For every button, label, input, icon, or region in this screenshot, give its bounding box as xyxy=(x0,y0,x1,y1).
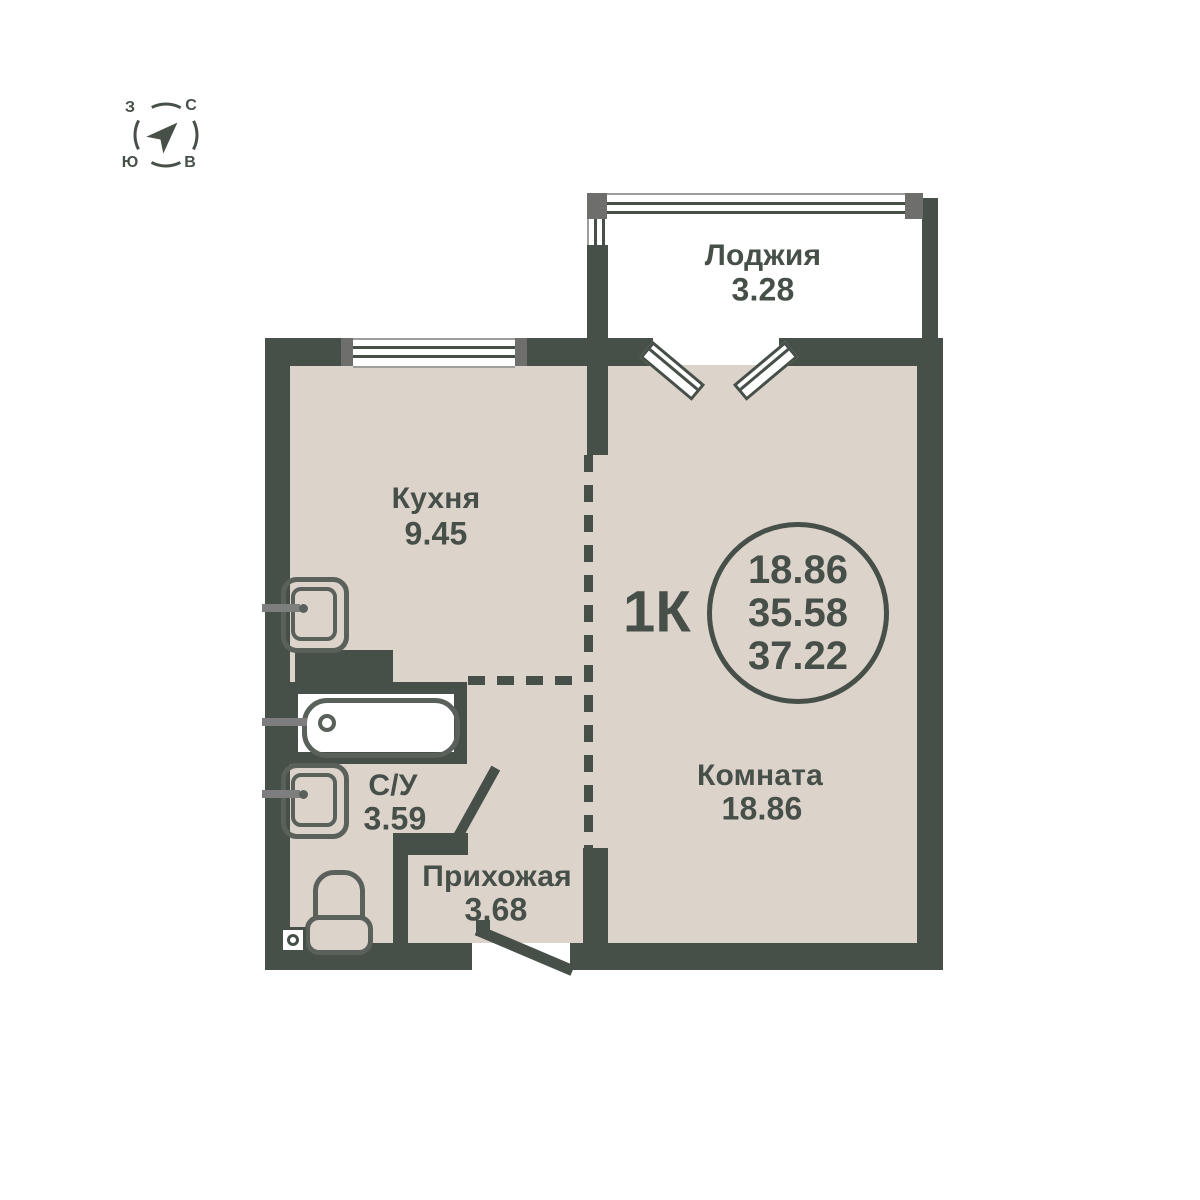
floor-drain-icon xyxy=(280,927,306,953)
area-summary-circle: 18.86 35.58 37.22 xyxy=(707,522,889,704)
kitchen-label: Кухня xyxy=(392,482,481,516)
loggia-window xyxy=(607,193,905,221)
room-area: 18.86 xyxy=(721,791,802,828)
hallway-label: Прихожая xyxy=(422,860,572,894)
kitchen-sink-basin xyxy=(291,587,337,641)
kitchen-window xyxy=(353,338,515,368)
compass-north-label: С xyxy=(185,97,197,115)
window-post xyxy=(515,338,527,366)
bathtub-tap-icon xyxy=(262,718,307,726)
kitchen-sink-tap-icon xyxy=(262,604,300,612)
wall-segment-left xyxy=(265,338,290,970)
hallway-area: 3.68 xyxy=(464,892,527,929)
wall-segment-loggia-right xyxy=(922,198,938,345)
wall-segment-top-room-right xyxy=(779,338,943,366)
wall-segment-top-kitchen-left xyxy=(265,338,353,366)
total-area-value: 37.22 xyxy=(748,635,848,678)
duct-block xyxy=(295,650,393,683)
wall-segment-room-hall xyxy=(583,848,608,945)
compass-east-label: В xyxy=(184,154,196,172)
window-post xyxy=(587,193,607,219)
kitchen-room-dashed-border xyxy=(584,455,593,848)
bathroom-label: С/У xyxy=(368,769,417,803)
kitchen-sink-drain-icon xyxy=(299,604,308,613)
bathroom-area: 3.59 xyxy=(363,801,426,838)
wall-segment-loggia-kitchen xyxy=(587,245,608,455)
area-without-loggia-value: 35.58 xyxy=(748,592,848,635)
loggia-area: 3.28 xyxy=(731,272,794,309)
compass-south-label: Ю xyxy=(122,154,139,172)
apartment-type-label: 1К xyxy=(623,579,691,646)
wall-segment-bottom-right xyxy=(570,943,943,970)
kitchen-area: 9.45 xyxy=(404,516,467,553)
wall-segment-right xyxy=(917,360,943,970)
living-area-value: 18.86 xyxy=(748,549,848,592)
window-post xyxy=(341,338,353,366)
window-post xyxy=(905,193,923,219)
loggia-label: Лоджия xyxy=(705,239,821,273)
bathroom-sink-basin xyxy=(291,773,337,827)
compass-arrow-icon xyxy=(146,114,186,154)
compass: З С Ю В xyxy=(0,0,260,230)
bathroom-sink-drain-icon xyxy=(299,790,308,799)
loggia-window-side xyxy=(587,219,609,245)
bathroom-sink-tap-icon xyxy=(262,790,300,798)
floor-plan: З С Ю В xyxy=(0,0,1200,1200)
bathtub-drain-icon xyxy=(318,714,336,732)
room-label: Комната xyxy=(697,759,823,793)
compass-west-label: З xyxy=(125,99,135,117)
kitchen-bathroom-dashed-border xyxy=(468,676,584,685)
toilet-tank xyxy=(305,915,373,955)
